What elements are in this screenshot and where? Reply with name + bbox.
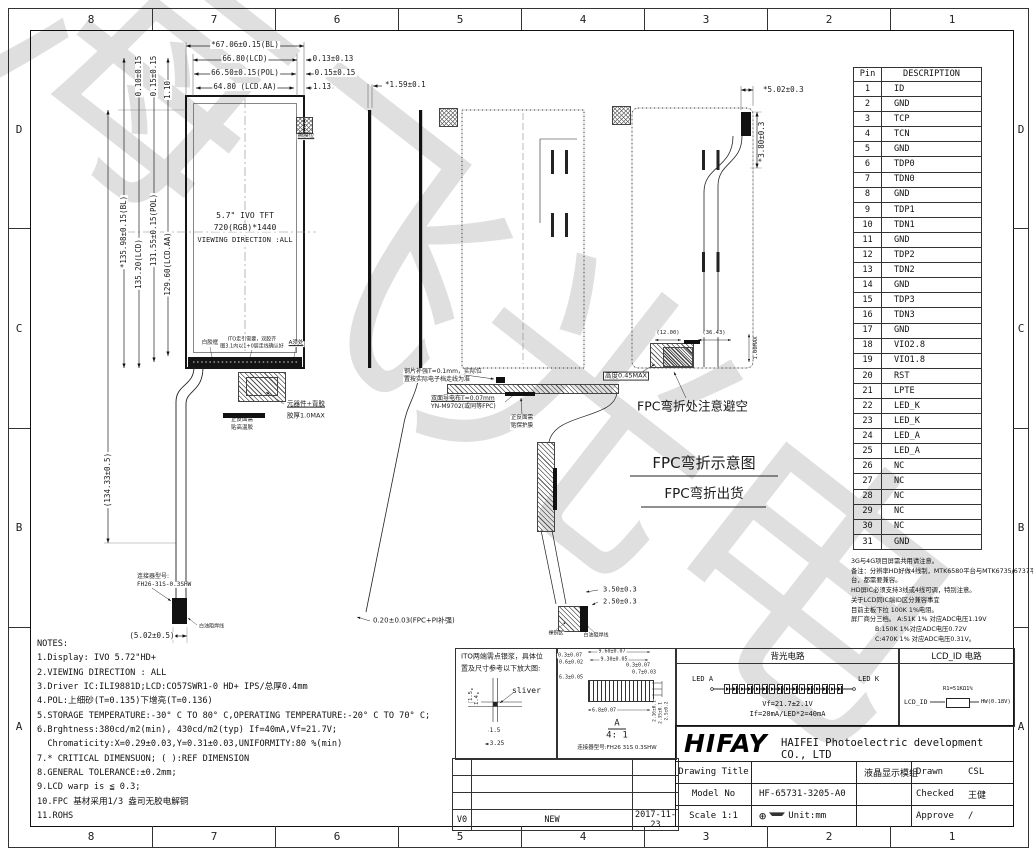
pin-row: 10TDN1 bbox=[854, 217, 982, 232]
projection-cone-icon bbox=[769, 812, 785, 819]
revision-row: V0NEW2017-11-23 bbox=[453, 810, 679, 831]
component-inner-hatch bbox=[246, 377, 278, 396]
pin-row: 23LED_K bbox=[854, 414, 982, 429]
pin-number: 6 bbox=[854, 157, 882, 172]
grid-col-5: 5 bbox=[399, 8, 522, 30]
pin-row: 30NC bbox=[854, 519, 982, 534]
pin-number: 18 bbox=[854, 338, 882, 353]
pin-desc: GND bbox=[882, 187, 982, 202]
pin-row: 28NC bbox=[854, 489, 982, 504]
pin-desc: GND bbox=[882, 278, 982, 293]
pin-row: 14GND bbox=[854, 278, 982, 293]
pin-number: 14 bbox=[854, 278, 882, 293]
pin-row: 7TDN0 bbox=[854, 172, 982, 187]
resistor-symbol bbox=[946, 698, 970, 708]
led-symbol bbox=[807, 684, 813, 694]
grid-col-3: 3 bbox=[645, 8, 768, 30]
pin-row: 24LED_A bbox=[854, 429, 982, 444]
pin-number: 10 bbox=[854, 217, 882, 232]
pin-desc: TDN2 bbox=[882, 263, 982, 278]
pin-row: 2GND bbox=[854, 97, 982, 112]
pin-desc: TDN3 bbox=[882, 308, 982, 323]
id-note-line: 关于LCD同IC端ID区分兼容事宜 bbox=[851, 596, 1015, 606]
pin-desc: ID bbox=[882, 82, 982, 97]
id-note-line: 目前主板下拉 100K 1%电阻。 bbox=[851, 606, 1015, 616]
pin-row: 5GND bbox=[854, 142, 982, 157]
pin-desc: GND bbox=[882, 97, 982, 112]
led-cathode-label: LED K bbox=[858, 676, 879, 683]
lcd-id-compatibility-notes: 3G与4G项目屏需共用请注意。备注：分辨率HD好做4线制，MTK6580平台与M… bbox=[851, 557, 1015, 644]
pin-row: 31GND bbox=[854, 534, 982, 549]
pin-number: 20 bbox=[854, 368, 882, 383]
note-line: 2.VIEWING DIRECTION : ALL bbox=[37, 666, 430, 680]
company-name: HAIFEI Photoelectric development CO., LT… bbox=[781, 737, 1013, 761]
grid-row-C: C bbox=[8, 229, 30, 428]
id-note-line: C:470K 1% 对应ADC电压0.31V。 bbox=[851, 635, 1015, 645]
pin-number: 24 bbox=[854, 429, 882, 444]
lcd-id-circuit-box: LCD_ID 电路 LCD_ID R1=51KΩ1% HW(0.18V) bbox=[898, 648, 1015, 727]
pin-row: 20RST bbox=[854, 368, 982, 383]
title-block: HIFAY HAIFEI Photoelectric development C… bbox=[675, 725, 1013, 826]
pin-row: 25LED_A bbox=[854, 444, 982, 459]
grid-col-7: 7 bbox=[153, 8, 276, 30]
adhesive-bar bbox=[223, 413, 265, 418]
grid-col-8: 8 bbox=[30, 826, 153, 847]
pin-row: 9TDP1 bbox=[854, 202, 982, 217]
grid-ref-left: DCBA bbox=[8, 30, 30, 826]
pin-desc: TDP1 bbox=[882, 202, 982, 217]
rev-version bbox=[453, 759, 472, 776]
pin-row: 16TDN3 bbox=[854, 308, 982, 323]
pin-number: 26 bbox=[854, 459, 882, 474]
ito-detail-box bbox=[455, 648, 558, 760]
rev-description bbox=[472, 793, 633, 810]
pin-desc: NC bbox=[882, 489, 982, 504]
pin-row: 4TCN bbox=[854, 127, 982, 142]
pin-desc: TDP3 bbox=[882, 293, 982, 308]
id-note-line: HD屏IC必须支持3线或4线可调，特别注意。 bbox=[851, 586, 1015, 596]
pin-row: 11GND bbox=[854, 232, 982, 247]
grid-col-2: 2 bbox=[768, 8, 891, 30]
drawn-label: Drawn bbox=[916, 761, 971, 783]
led-symbol bbox=[754, 684, 760, 694]
note-line: 4.POL:上细砂(T=0.135)下增亮(T=0.136) bbox=[37, 694, 430, 708]
fold-area-inner-hatch bbox=[663, 347, 693, 367]
id-note-line: B:150K 1%对应ADC电压0.72V bbox=[851, 625, 1015, 635]
pin-desc: GND bbox=[882, 232, 982, 247]
pin-desc: LED_K bbox=[882, 414, 982, 429]
pin-desc: NC bbox=[882, 519, 982, 534]
pin-number: 12 bbox=[854, 248, 882, 263]
gold-finger-stiffener bbox=[558, 606, 582, 632]
led-symbol bbox=[784, 684, 790, 694]
lcd-id-circuit-title: LCD_ID 电路 bbox=[899, 649, 1014, 664]
checked-value: 王健 bbox=[968, 783, 1014, 805]
grid-ref-top: 87654321 bbox=[30, 8, 1013, 30]
note-line: 6.Brghtness:380cd/m2(min), 430cd/m2(typ)… bbox=[37, 723, 430, 737]
rev-date bbox=[633, 793, 679, 810]
notes-list: NOTES:1.Display: IVO 5.72"HD+2.VIEWING D… bbox=[37, 637, 430, 823]
lcd-id-output: HW(0.18V) bbox=[981, 700, 1011, 706]
led-symbol bbox=[792, 684, 798, 694]
revision-row bbox=[453, 759, 679, 776]
pin-row: 22LED_K bbox=[854, 398, 982, 413]
note-line: 10.FPC 基材采用1/3 盎司无胶电解铜 bbox=[37, 795, 430, 809]
pin-table-header: Pin DESCRIPTION bbox=[854, 68, 982, 82]
rev-description bbox=[472, 776, 633, 793]
led-symbol bbox=[777, 684, 783, 694]
grid-row-C: C bbox=[1013, 229, 1029, 428]
grid-row-D: D bbox=[8, 30, 30, 229]
pin-row: 17GND bbox=[854, 323, 982, 338]
note-line: 1.Display: IVO 5.72"HD+ bbox=[37, 651, 430, 665]
pin-row: 21LPTE bbox=[854, 383, 982, 398]
engineering-drawing-sheet: 海飞光电 87654321 87654321 DCBA DCBA bbox=[0, 0, 1033, 854]
grid-row-B: B bbox=[1013, 429, 1029, 628]
led-symbol bbox=[814, 684, 820, 694]
pin-desc: NC bbox=[882, 459, 982, 474]
pin-desc: TDP0 bbox=[882, 157, 982, 172]
grid-col-6: 6 bbox=[276, 8, 399, 30]
backlight-circuit-title: 背光电路 bbox=[676, 649, 899, 664]
pin-desc: GND bbox=[882, 142, 982, 157]
grid-col-4: 4 bbox=[522, 8, 645, 30]
rev-version bbox=[453, 776, 472, 793]
backlight-vf: Vf=21.7±2.1V bbox=[676, 701, 899, 708]
pin-number: 21 bbox=[854, 383, 882, 398]
pin-number: 23 bbox=[854, 414, 882, 429]
grid-col-2: 2 bbox=[768, 826, 891, 847]
pin-number: 3 bbox=[854, 112, 882, 127]
pin-table: Pin DESCRIPTION 1ID2GND3TCP4TCN5GND6TDP0… bbox=[853, 67, 982, 550]
pin-number: 15 bbox=[854, 293, 882, 308]
pin-row: 19VIO1.8 bbox=[854, 353, 982, 368]
note-line: 9.LCD warp is ≦ 0.3; bbox=[37, 780, 430, 794]
pin-number: 30 bbox=[854, 519, 882, 534]
pin-number: 4 bbox=[854, 127, 882, 142]
pin-desc: LED_K bbox=[882, 398, 982, 413]
right-view-corner-mark bbox=[612, 106, 631, 125]
checked-label: Checked bbox=[916, 783, 971, 805]
grid-col-7: 7 bbox=[153, 826, 276, 847]
pin-number: 8 bbox=[854, 187, 882, 202]
pin-number: 13 bbox=[854, 263, 882, 278]
note-line: 7.* CRITICAL DIMENSUON; ( ):REF DIMENSIO… bbox=[37, 752, 430, 766]
revision-row bbox=[453, 776, 679, 793]
pin-row: 1ID bbox=[854, 82, 982, 97]
pin-desc: NC bbox=[882, 504, 982, 519]
id-note-line: 屏厂商分三档。 A:51K 1% 对应ADC电压1.19V bbox=[851, 615, 1015, 625]
pin-row: 13TDN2 bbox=[854, 263, 982, 278]
grid-row-B: B bbox=[8, 429, 30, 628]
pin-row: 26NC bbox=[854, 459, 982, 474]
back-view-corner-mark bbox=[439, 108, 458, 127]
grid-row-A: A bbox=[8, 628, 30, 826]
pin-desc: TDP2 bbox=[882, 248, 982, 263]
unit-cell: ⊕ Unit:mm bbox=[759, 805, 856, 827]
rev-description bbox=[472, 759, 633, 776]
projection-symbol-icon: ⊕ bbox=[759, 809, 766, 823]
pin-number: 25 bbox=[854, 444, 882, 459]
connector-detail-box bbox=[556, 648, 677, 760]
id-note-line: 备注：分辨率HD好做4线制，MTK6580平台与MTK6735/6737平 bbox=[851, 567, 1015, 577]
rev-date bbox=[633, 776, 679, 793]
rev-version: V0 bbox=[453, 810, 472, 831]
pin-row: 15TDP3 bbox=[854, 293, 982, 308]
led-symbol bbox=[822, 684, 828, 694]
revision-table: V0NEW2017-11-23 bbox=[452, 758, 679, 831]
note-line: 3.Driver IC:ILI9881D;LCD:CO57SWR1-0 HD+ … bbox=[37, 680, 430, 694]
led-symbol bbox=[769, 684, 775, 694]
scale-label: Scale 1:1 bbox=[676, 805, 751, 827]
pin-desc: TDN1 bbox=[882, 217, 982, 232]
pin-row: 29NC bbox=[854, 504, 982, 519]
led-symbol bbox=[732, 684, 738, 694]
gold-finger-contacts bbox=[580, 606, 588, 632]
note-line: 5.STORAGE TEMPERATURE:-30° C TO 80° C,OP… bbox=[37, 709, 430, 723]
drawing-title-label: Drawing Title bbox=[676, 761, 751, 783]
desc-col-header: DESCRIPTION bbox=[882, 68, 982, 82]
backlight-circuit-box: 背光电路 LED A LED K Vf=21.7±2.1V If=20mA/LE… bbox=[675, 648, 900, 727]
id-note-line: 台，都需要兼容。 bbox=[851, 576, 1015, 586]
pin-number: 11 bbox=[854, 232, 882, 247]
pin-number: 9 bbox=[854, 202, 882, 217]
peel-mark-hatch bbox=[296, 117, 313, 134]
pin-number: 16 bbox=[854, 308, 882, 323]
led-symbol bbox=[837, 684, 843, 694]
pin-row: 6TDP0 bbox=[854, 157, 982, 172]
company-logo: HIFAY bbox=[684, 729, 768, 758]
fpc-strip-bar bbox=[553, 468, 557, 510]
grid-col-6: 6 bbox=[276, 826, 399, 847]
rev-date: 2017-11-23 bbox=[633, 810, 679, 831]
pin-desc: LPTE bbox=[882, 383, 982, 398]
approve-value: / bbox=[968, 805, 1014, 827]
pin-number: 5 bbox=[854, 142, 882, 157]
pin-row: 18VIO2.8 bbox=[854, 338, 982, 353]
pin-row: 27NC bbox=[854, 474, 982, 489]
drawn-value: CSL bbox=[968, 761, 1014, 783]
pin-desc: GND bbox=[882, 323, 982, 338]
pin-desc: VIO1.8 bbox=[882, 353, 982, 368]
note-line: 11.ROHS bbox=[37, 809, 430, 823]
led-chain bbox=[724, 684, 843, 694]
led-symbol bbox=[799, 684, 805, 694]
led-symbol bbox=[762, 684, 768, 694]
model-value: HF-65731-3205-A0 bbox=[759, 783, 856, 805]
pin-number: 17 bbox=[854, 323, 882, 338]
pin-desc: LED_A bbox=[882, 429, 982, 444]
grid-col-8: 8 bbox=[30, 8, 153, 30]
fold-black-bar bbox=[684, 340, 700, 344]
rev-version bbox=[453, 793, 472, 810]
conductive-cloth-bar bbox=[505, 392, 535, 396]
revision-row bbox=[453, 793, 679, 810]
led-symbol bbox=[747, 684, 753, 694]
pin-number: 19 bbox=[854, 353, 882, 368]
pin-desc: GND bbox=[882, 534, 982, 549]
rev-date bbox=[633, 759, 679, 776]
led-symbol bbox=[739, 684, 745, 694]
pin-number: 27 bbox=[854, 474, 882, 489]
note-line: 8.GENERAL TOLERANCE:±0.2mm; bbox=[37, 766, 430, 780]
led-symbol bbox=[829, 684, 835, 694]
rev-description: NEW bbox=[472, 810, 633, 831]
pin-desc: TDN0 bbox=[882, 172, 982, 187]
id-note-line: 3G与4G项目屏需共用请注意。 bbox=[851, 557, 1015, 567]
pin-number: 28 bbox=[854, 489, 882, 504]
pin-number: 1 bbox=[854, 82, 882, 97]
approve-label: Approve bbox=[916, 805, 971, 827]
pin-row: 12TDP2 bbox=[854, 248, 982, 263]
pin-number: 2 bbox=[854, 97, 882, 112]
pin-number: 31 bbox=[854, 534, 882, 549]
steel-stiffener bbox=[496, 377, 505, 383]
unit-label: Unit:mm bbox=[788, 811, 826, 821]
pin-desc: RST bbox=[882, 368, 982, 383]
led-symbol bbox=[724, 684, 730, 694]
lcd-id-signal: LCD_ID bbox=[904, 699, 927, 706]
pin-number: 7 bbox=[854, 172, 882, 187]
pin-desc: TCP bbox=[882, 112, 982, 127]
pin-number: 22 bbox=[854, 398, 882, 413]
model-label: Model No bbox=[676, 783, 751, 805]
pin-col-header: Pin bbox=[854, 68, 882, 82]
pin-desc: TCN bbox=[882, 127, 982, 142]
note-line: Chromaticity:X=0.29±0.03,Y=0.31±0.03,UNI… bbox=[37, 737, 430, 751]
grid-col-1: 1 bbox=[891, 826, 1013, 847]
pin-desc: LED_A bbox=[882, 444, 982, 459]
pin-row: 8GND bbox=[854, 187, 982, 202]
pin-number: 29 bbox=[854, 504, 882, 519]
grid-col-1: 1 bbox=[891, 8, 1013, 30]
led-anode-label: LED A bbox=[692, 676, 713, 683]
pin-desc: VIO2.8 bbox=[882, 338, 982, 353]
grid-row-D: D bbox=[1013, 30, 1029, 229]
pin-row: 3TCP bbox=[854, 112, 982, 127]
grid-ref-right: DCBA bbox=[1013, 30, 1029, 826]
note-line: NOTES: bbox=[37, 637, 430, 651]
grid-row-A: A bbox=[1013, 628, 1029, 826]
lcd-id-resistor-label: R1=51KΩ1% bbox=[943, 687, 973, 693]
backlight-if: If=20mA/LED*2=40mA bbox=[676, 711, 899, 718]
pin-desc: NC bbox=[882, 474, 982, 489]
